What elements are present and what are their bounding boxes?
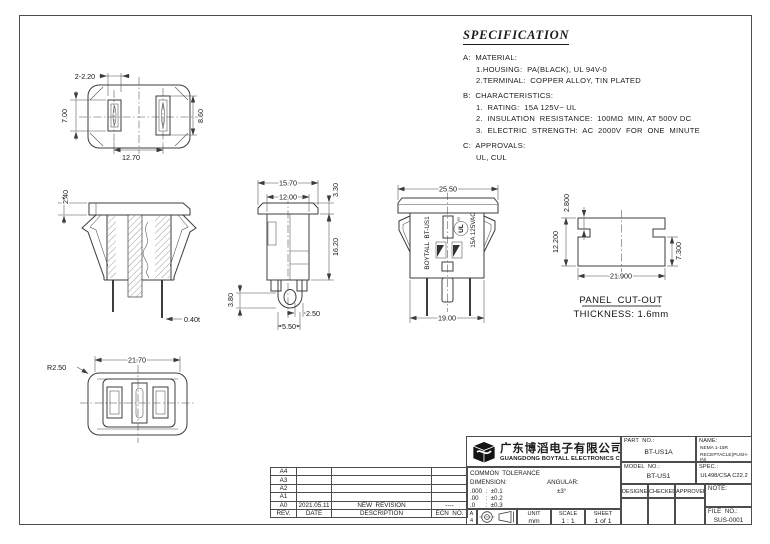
engineering-drawing-sheet: 2-2.20 7.00 8.60 12.70: [0, 0, 770, 544]
spec-cell: SPEC.: UL498/CSA C22.2: [696, 462, 752, 484]
table-row: A3: [271, 476, 468, 484]
dim-label: 0.40t: [184, 315, 200, 324]
view-front-face: 2-2.20 7.00 8.60 12.70: [60, 72, 205, 162]
sheet-value: 1 of 1: [586, 518, 620, 525]
spec-item: 2. INSULATION RESISTANCE: 100MΩ MIN, AT …: [476, 114, 749, 123]
ecn-cell: [432, 476, 468, 484]
spec-value: UL498/CSA C22.2: [697, 473, 751, 479]
projection-symbol-cell: [477, 509, 517, 525]
projection-symbol-icon: [479, 510, 517, 524]
date-header: DATE: [297, 509, 332, 517]
note-cell: NOTE:: [705, 484, 752, 507]
spec-item: UL, CUL: [476, 153, 749, 162]
dim-label: 2.800: [562, 194, 571, 212]
spec-item: 1.HOUSING: PA(BLACK), UL 94V-0: [476, 65, 749, 74]
tolerance-row: .000 : ±0.1: [470, 488, 503, 495]
company-cell: 广东博滔电子有限公司 GUANGDONG BOYTALL ELECTRONICS…: [466, 436, 621, 467]
dim-label: 12.00: [279, 193, 297, 202]
spec-label: SPEC.:: [699, 464, 718, 470]
ecn-cell: [432, 484, 468, 492]
part-no-value: BT-US1A: [622, 449, 695, 456]
part-no-label: PART NO.:: [624, 438, 654, 444]
rev-header: REV.: [271, 509, 297, 517]
revision-table: A4 A3 A2 A1: [270, 467, 468, 518]
table-row: A2: [271, 484, 468, 492]
date-cell: [297, 468, 332, 476]
rev-cell: A4: [271, 468, 297, 476]
tolerance-cell: COMMON TOLERANCE DIMENSION: ANGULAR: .00…: [466, 467, 621, 509]
date-cell: 2021.05.11: [297, 501, 332, 509]
part-no-cell: PART NO.: BT-US1A: [621, 436, 696, 462]
name-value-line1: NEMA 1-15R: [700, 446, 728, 451]
description-cell: [332, 468, 432, 476]
view-cross-section: 2.40 0.40t: [58, 190, 200, 324]
date-cell: [297, 484, 332, 492]
date-cell: [297, 493, 332, 501]
approved-label: APPROVED: [676, 489, 704, 495]
checked-label: CHECKED: [649, 489, 674, 495]
rev-cell: A2: [271, 484, 297, 492]
note-label: NOTE:: [708, 486, 727, 492]
scale-label: SCALE: [552, 511, 584, 517]
title-block: 广东博滔电子有限公司 GUANGDONG BOYTALL ELECTRONICS…: [466, 436, 752, 525]
table-row: A0 2021.05.11 NEW REVISION ----: [271, 501, 468, 509]
checked-signature-cell: [648, 498, 675, 525]
tolerance-row: .00 : ±0.2: [470, 495, 503, 502]
tolerance-row: .0 : ±0.3: [470, 502, 503, 509]
unit-cell: UNIT mm: [517, 509, 551, 525]
model-no-label: MODEL NO.:: [624, 464, 660, 470]
date-cell: [297, 476, 332, 484]
company-name-en: GUANGDONG BOYTALL ELECTRONICS CO.,LTD: [500, 456, 621, 462]
spec-item: 3. ELECTRIC STRENGTH: AC 2000V FOR ONE M…: [476, 126, 749, 135]
spec-item: 2.TERMINAL: COPPER ALLOY, TIN PLATED: [476, 76, 749, 85]
dim-label: 21.70: [128, 356, 146, 365]
spec-section-a-heading: A: MATERIAL:: [463, 53, 749, 62]
dim-label: 7.00: [60, 109, 69, 123]
dim-label: 16.20: [331, 238, 340, 256]
specification-title: SPECIFICATION: [463, 28, 569, 45]
dimension-label: DIMENSION:: [470, 479, 507, 486]
dim-label: 3.80: [226, 293, 235, 307]
designer-signature-cell: [621, 498, 648, 525]
sheet-cell: SHEET 1 of 1: [585, 509, 621, 525]
description-cell: NEW REVISION: [332, 501, 432, 509]
description-cell: [332, 476, 432, 484]
rev-cell: A0: [271, 501, 297, 509]
file-no-value: SUS-0001: [706, 517, 751, 524]
file-no-cell: FILE NO.: SUS-0001: [705, 507, 752, 525]
spec-section-c-heading: C: APPROVALS:: [463, 141, 749, 150]
tolerance-title: COMMON TOLERANCE: [470, 470, 540, 477]
dim-label: 25.50: [439, 185, 457, 194]
angular-value: ±3°: [557, 488, 566, 495]
dim-label: 12.200: [551, 231, 560, 253]
table-row: A1: [271, 493, 468, 501]
dim-label: R2.50: [47, 363, 66, 372]
panel-cutout-thickness: THICKNESS: 1.6mm: [573, 309, 668, 320]
paper-size-row: A: [467, 511, 476, 518]
table-header-row: REV. DATE DESCRIPTION ECN NO.: [271, 509, 468, 517]
rev-cell: A3: [271, 476, 297, 484]
model-no-value: BT-US1: [622, 473, 695, 480]
unit-value: mm: [518, 518, 550, 525]
dim-label: 5.50: [282, 322, 296, 331]
dim-label: 21.900: [610, 272, 632, 281]
unit-label: UNIT: [518, 511, 550, 517]
specification-block: SPECIFICATION A: MATERIAL: 1.HOUSING: PA…: [463, 26, 749, 162]
approved-cell: APPROVED: [675, 484, 705, 498]
company-name-cn: 广东博滔电子有限公司: [500, 440, 621, 456]
dim-label: 7.300: [674, 242, 683, 260]
rev-cell: A1: [271, 493, 297, 501]
paper-size-row: 4: [467, 518, 476, 525]
file-no-label: FILE NO.:: [708, 509, 738, 515]
angular-label: ANGULAR:: [547, 479, 579, 486]
dim-label: 8.60: [196, 109, 205, 123]
sheet-label: SHEET: [586, 511, 620, 517]
spec-section-b-heading: B: CHARACTERISTICS:: [463, 91, 749, 100]
scale-value: 1 : 1: [552, 518, 584, 525]
view-side-elevation: 15.70 12.00 3.30 16.20 3.80: [226, 179, 340, 332]
name-cell: NAME: NEMA 1-15R RECEPTACLE(PUSH-IN): [696, 436, 752, 462]
designer-label: DESIGNER: [622, 489, 647, 495]
checked-cell: CHECKED: [648, 484, 675, 498]
dim-label: 2.40: [61, 190, 70, 204]
ecn-cell: ----: [432, 501, 468, 509]
view-panel-cutout: 2.800 12.200 7.300 21.900 PANEL CUT-OUT …: [551, 194, 683, 320]
ecn-cell: [432, 468, 468, 476]
description-cell: [332, 493, 432, 501]
ecn-cell: [432, 493, 468, 501]
name-label: NAME:: [699, 438, 717, 444]
designer-cell: DESIGNER: [621, 484, 648, 498]
dim-label: 2.50: [306, 309, 320, 318]
name-value-line2: RECEPTACLE(PUSH-IN): [700, 453, 751, 462]
table-row: A4: [271, 468, 468, 476]
dim-label: 12.70: [122, 153, 140, 162]
dim-label: 2-2.20: [75, 72, 95, 81]
view-bottom: 21.70 R2.50: [47, 356, 196, 444]
spec-item: 1. RATING: 15A 125V~ UL: [476, 103, 749, 112]
dim-label: 3.30: [331, 183, 340, 197]
dim-label: 19.00: [438, 314, 456, 323]
description-header: DESCRIPTION: [332, 509, 432, 517]
view-rear-elevation: UL us BOYTALL BT-US1 15A 125VAC 25.50 19…: [398, 185, 498, 324]
description-cell: [332, 484, 432, 492]
approved-signature-cell: [675, 498, 705, 525]
panel-cutout-title: PANEL CUT-OUT: [579, 295, 662, 306]
company-logo-icon: [470, 439, 498, 465]
ecn-header: ECN NO.: [432, 509, 468, 517]
ul-mark: UL: [458, 224, 465, 233]
rating-marking: 15A 125VAC: [470, 212, 477, 248]
paper-size-cell: A 4: [466, 509, 477, 525]
scale-cell: SCALE 1 : 1: [551, 509, 585, 525]
brand-marking: BOYTALL BT-US1: [424, 216, 431, 270]
dim-label: 15.70: [279, 179, 297, 188]
model-no-cell: MODEL NO.: BT-US1: [621, 462, 696, 484]
ul-mark-sub: us: [457, 217, 461, 221]
